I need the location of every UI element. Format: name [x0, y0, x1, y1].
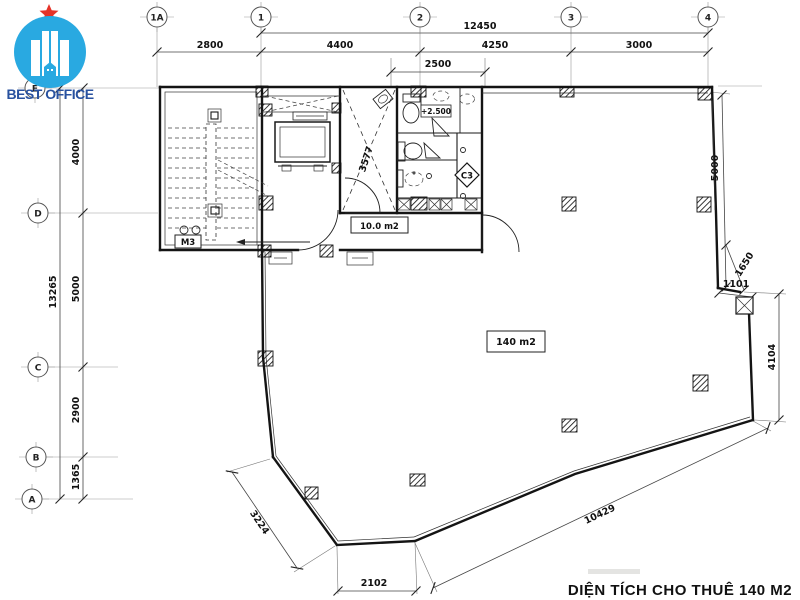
grid-marker-b: B: [19, 442, 53, 472]
dimensions-bottom: 10429 3224 2102: [226, 421, 774, 596]
dim-bottom-2102: 2102: [361, 578, 387, 589]
grid-marker-2: 2: [403, 2, 437, 32]
dim-right-1650: 1650: [733, 250, 757, 279]
main-door-arc: [482, 215, 519, 252]
dim-bay-3-4: 3000: [626, 40, 653, 51]
dimensions-top: 12450 2800 4400 4250 3000 2500: [153, 21, 713, 86]
room-label-main: 140 m2: [487, 331, 545, 352]
grid-marker-3: 3: [554, 2, 588, 32]
room-label-small: 10.0 m2: [351, 217, 408, 233]
door-mark-m3: M3: [175, 226, 201, 248]
dim-bay-d-c: 5000: [71, 275, 82, 302]
grid-marker-c: C: [21, 352, 55, 382]
dim-right-4104: 4104: [767, 343, 778, 370]
grid-marker-a: A: [15, 484, 49, 514]
corner-sink: [373, 89, 393, 108]
print-smudge: [588, 569, 640, 574]
shaft-room: 3577: [343, 89, 395, 213]
dim-bay-e-d: 4000: [71, 138, 82, 165]
grid-label-1a: 1A: [150, 14, 163, 24]
grid-label-d: D: [34, 210, 41, 220]
drawing-title: DIỆN TÍCH CHO THUÊ 140 M2: [568, 581, 792, 599]
level-marker: +2.500: [421, 105, 451, 117]
dim-right-1101: 1101: [723, 279, 749, 290]
dim-bottom-10429: 10429: [583, 503, 618, 527]
column-mark-c3: C3: [455, 163, 479, 187]
dim-bay-b-a: 1365: [71, 464, 82, 490]
grid-marker-d: D: [21, 198, 55, 228]
level-marker-label: +2.500: [421, 107, 451, 116]
grid-label-1: 1: [258, 14, 264, 24]
dim-bay-1-2: 4400: [327, 40, 354, 51]
logo-brand-text: BEST OFFICE: [6, 86, 93, 102]
sink-top-right: [460, 94, 475, 104]
door-swing-arrow: [236, 210, 338, 250]
dim-bay-1a-1: 2800: [197, 40, 224, 51]
dim-overall-top: 12450: [463, 21, 496, 32]
door-leaf-lower: [424, 143, 440, 158]
column-mark-c3-label: C3: [461, 172, 473, 182]
elevator: [262, 96, 340, 171]
grid-label-a: A: [29, 496, 36, 506]
dim-sub-2500: 2500: [425, 59, 452, 70]
grid-markers-top: 1A 1 2 3 4: [140, 2, 725, 32]
toilet-lower: [398, 142, 422, 161]
dim-bottom-3224: 3224: [247, 509, 271, 537]
dim-bay-c-b: 2900: [71, 396, 82, 423]
room-label-small-text: 10.0 m2: [360, 222, 399, 232]
room-label-main-text: 140 m2: [496, 337, 536, 348]
wc-block: +2.500 C3: [397, 87, 482, 210]
column-x-box: [736, 297, 753, 314]
sink-top-left: [433, 91, 449, 101]
floor-plan-page: 1A 1 2 3 4 E: [0, 0, 800, 600]
grid-marker-1: 1: [244, 2, 278, 32]
door-mark-m3-label: M3: [181, 238, 195, 248]
sink-lower: [397, 170, 423, 187]
threshold: [347, 252, 373, 265]
grid-label-c: C: [35, 364, 42, 374]
dimensions-right: 5000 1650 1101 4104: [710, 91, 786, 425]
dimensions-left: 13265 4000 5000 2900 1365: [48, 84, 88, 504]
grid-marker-4: 4: [691, 2, 725, 32]
floor-plan-drawing: 1A 1 2 3 4 E: [0, 0, 800, 600]
grid-label-3: 3: [568, 14, 574, 24]
dim-bay-2-3: 4250: [482, 40, 509, 51]
grid-label-4: 4: [705, 14, 711, 24]
grid-label-b: B: [33, 454, 40, 464]
logo-disc: [14, 16, 86, 88]
best-office-logo: BEST OFFICE: [6, 4, 93, 102]
grid-marker-1a: 1A: [140, 2, 174, 32]
grid-label-2: 2: [417, 14, 423, 24]
wc-threshold-strip: [398, 199, 477, 210]
toilet-upper: [403, 94, 420, 123]
dim-overall-left: 13265: [48, 275, 59, 308]
grid-lines: [42, 28, 762, 499]
